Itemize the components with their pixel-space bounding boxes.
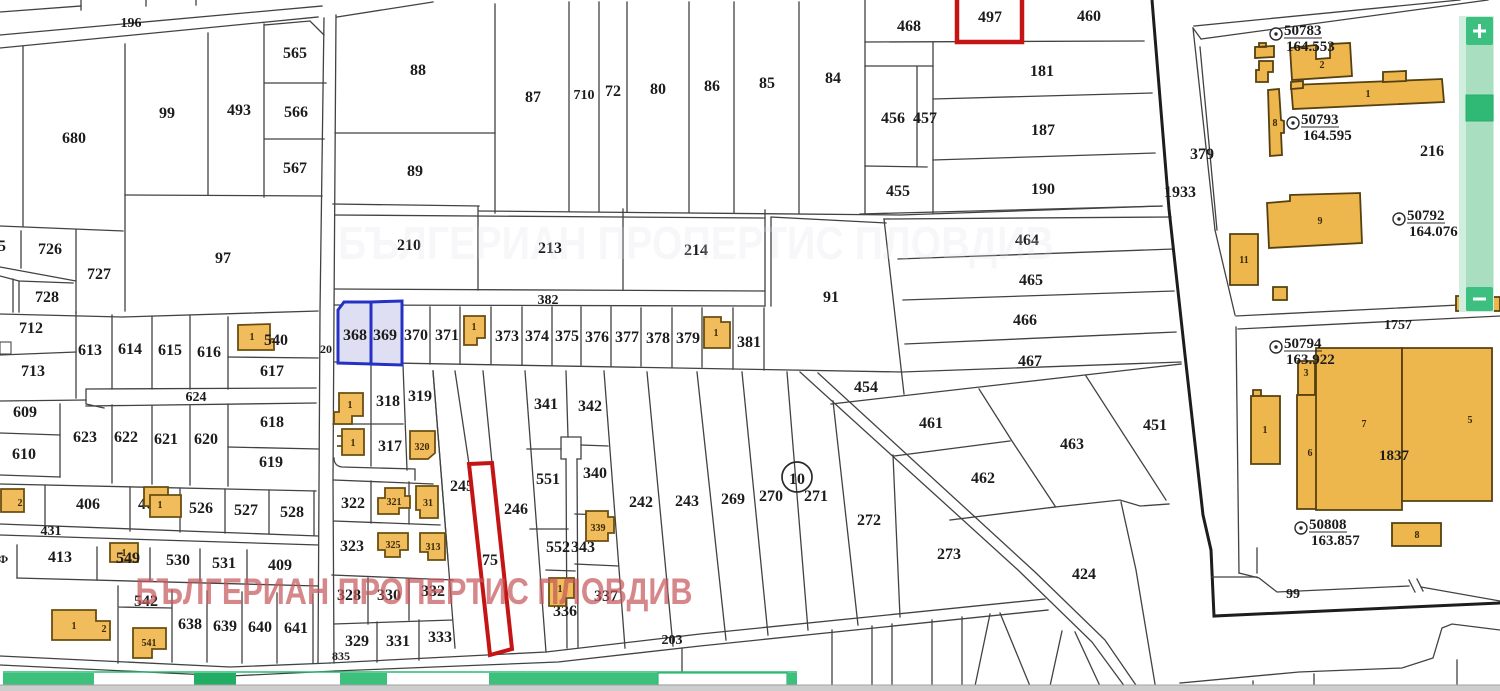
svg-text:339: 339 xyxy=(591,523,606,534)
svg-text:317: 317 xyxy=(378,438,402,455)
svg-text:616: 616 xyxy=(197,344,221,361)
svg-text:323: 323 xyxy=(340,538,364,555)
svg-text:3: 3 xyxy=(1304,368,1309,379)
svg-text:712: 712 xyxy=(19,320,43,337)
svg-text:164.076: 164.076 xyxy=(1409,224,1458,240)
svg-text:457: 457 xyxy=(913,110,937,127)
svg-text:728: 728 xyxy=(35,289,59,306)
svg-text:468: 468 xyxy=(897,18,921,35)
svg-text:273: 273 xyxy=(937,546,961,563)
svg-text:835: 835 xyxy=(332,649,350,663)
svg-text:371: 371 xyxy=(435,327,459,344)
svg-text:1757: 1757 xyxy=(1384,318,1412,333)
svg-text:2: 2 xyxy=(102,624,107,635)
svg-text:8: 8 xyxy=(1415,530,1420,541)
svg-text:609: 609 xyxy=(13,404,37,421)
svg-text:216: 216 xyxy=(1420,143,1444,160)
svg-text:187: 187 xyxy=(1031,122,1055,139)
svg-text:322: 322 xyxy=(341,495,365,512)
svg-text:1: 1 xyxy=(351,438,356,449)
svg-text:615: 615 xyxy=(158,342,182,359)
svg-text:331: 331 xyxy=(386,633,410,650)
svg-text:318: 318 xyxy=(376,393,400,410)
svg-text:610: 610 xyxy=(12,446,36,463)
svg-text:271: 271 xyxy=(804,488,828,505)
svg-text:641: 641 xyxy=(284,620,308,637)
svg-text:50783: 50783 xyxy=(1284,23,1322,39)
svg-text:614: 614 xyxy=(118,341,142,358)
svg-text:377: 377 xyxy=(615,329,639,346)
svg-text:680: 680 xyxy=(62,130,86,147)
svg-text:1: 1 xyxy=(72,621,77,632)
svg-text:540: 540 xyxy=(264,332,288,349)
svg-text:624: 624 xyxy=(186,390,207,405)
svg-text:466: 466 xyxy=(1013,312,1037,329)
svg-text:10: 10 xyxy=(789,471,805,488)
svg-text:2: 2 xyxy=(18,498,23,509)
svg-text:88: 88 xyxy=(410,62,426,79)
svg-text:80: 80 xyxy=(650,81,666,98)
svg-text:196: 196 xyxy=(121,16,142,31)
svg-text:406: 406 xyxy=(76,496,100,513)
svg-text:319: 319 xyxy=(408,388,432,405)
svg-text:329: 329 xyxy=(345,633,369,650)
svg-text:373: 373 xyxy=(495,328,519,345)
svg-text:381: 381 xyxy=(737,334,761,351)
svg-text:270: 270 xyxy=(759,488,783,505)
svg-text:164.553: 164.553 xyxy=(1286,39,1335,55)
svg-text:431: 431 xyxy=(41,524,62,539)
svg-text:242: 242 xyxy=(629,494,653,511)
svg-text:50792: 50792 xyxy=(1407,208,1445,224)
svg-text:99: 99 xyxy=(1286,587,1300,602)
svg-text:456: 456 xyxy=(881,110,905,127)
svg-text:621: 621 xyxy=(154,431,178,448)
svg-text:6: 6 xyxy=(1308,448,1313,459)
svg-text:528: 528 xyxy=(280,504,304,521)
svg-text:181: 181 xyxy=(1030,63,1054,80)
svg-text:75: 75 xyxy=(482,552,498,569)
svg-text:86: 86 xyxy=(704,78,720,95)
svg-text:623: 623 xyxy=(73,429,97,446)
svg-text:530: 530 xyxy=(166,552,190,569)
svg-text:465: 465 xyxy=(1019,272,1043,289)
svg-text:462: 462 xyxy=(971,470,995,487)
svg-text:726: 726 xyxy=(38,241,62,258)
svg-text:463: 463 xyxy=(1060,436,1084,453)
svg-text:333: 333 xyxy=(428,629,452,646)
svg-text:84: 84 xyxy=(825,70,841,87)
svg-text:1837: 1837 xyxy=(1379,448,1410,464)
svg-text:50808: 50808 xyxy=(1309,517,1347,533)
svg-text:5: 5 xyxy=(1468,415,1473,426)
svg-text:369: 369 xyxy=(373,327,397,344)
svg-text:321: 321 xyxy=(387,497,402,508)
svg-text:31: 31 xyxy=(423,498,433,509)
svg-text:50794: 50794 xyxy=(1284,336,1322,352)
svg-text:163.922: 163.922 xyxy=(1286,352,1335,368)
svg-text:620: 620 xyxy=(194,431,218,448)
svg-text:460: 460 xyxy=(1077,8,1101,25)
svg-text:99: 99 xyxy=(159,105,175,122)
svg-text:164.595: 164.595 xyxy=(1303,128,1352,144)
svg-text:1: 1 xyxy=(1263,425,1268,436)
svg-text:1: 1 xyxy=(348,400,353,411)
svg-text:713: 713 xyxy=(21,363,45,380)
svg-text:379: 379 xyxy=(1190,146,1214,163)
svg-text:243: 243 xyxy=(675,493,699,510)
svg-text:541: 541 xyxy=(142,638,157,649)
svg-text:8: 8 xyxy=(1273,118,1278,129)
svg-text:413: 413 xyxy=(48,549,72,566)
svg-text:622: 622 xyxy=(114,429,138,446)
svg-text:374: 374 xyxy=(525,328,549,345)
svg-text:163.857: 163.857 xyxy=(1311,533,1360,549)
svg-text:5: 5 xyxy=(0,238,6,255)
svg-text:549: 549 xyxy=(116,550,140,567)
svg-text:497: 497 xyxy=(978,9,1002,26)
svg-text:БЪЛГЕРИАН ПРОПЕРТИС ПЛОВДИВ: БЪЛГЕРИАН ПРОПЕРТИС ПЛОВДИВ xyxy=(136,571,693,612)
svg-text:382: 382 xyxy=(538,293,559,308)
svg-text:341: 341 xyxy=(534,396,558,413)
svg-text:246: 246 xyxy=(504,501,528,518)
svg-text:1: 1 xyxy=(158,500,163,511)
svg-text:Ф: Ф xyxy=(0,552,8,566)
svg-text:89: 89 xyxy=(407,163,423,180)
svg-text:85: 85 xyxy=(759,75,775,92)
svg-text:1: 1 xyxy=(1366,89,1371,100)
svg-text:454: 454 xyxy=(854,379,878,396)
svg-text:87: 87 xyxy=(525,89,541,106)
svg-text:269: 269 xyxy=(721,491,745,508)
svg-text:639: 639 xyxy=(213,618,237,635)
svg-text:461: 461 xyxy=(919,415,943,432)
svg-text:320: 320 xyxy=(415,442,430,453)
svg-text:91: 91 xyxy=(823,289,839,306)
svg-text:1: 1 xyxy=(714,328,719,339)
svg-text:325: 325 xyxy=(386,540,401,551)
svg-text:551: 551 xyxy=(536,471,560,488)
svg-text:618: 618 xyxy=(260,414,284,431)
svg-text:50793: 50793 xyxy=(1301,112,1339,128)
svg-text:2: 2 xyxy=(1320,60,1325,71)
svg-text:20: 20 xyxy=(320,342,332,356)
svg-text:613: 613 xyxy=(78,342,102,359)
svg-text:342: 342 xyxy=(578,398,602,415)
svg-text:531: 531 xyxy=(212,555,236,572)
svg-text:376: 376 xyxy=(585,329,609,346)
svg-text:565: 565 xyxy=(283,45,307,62)
svg-text:727: 727 xyxy=(87,266,111,283)
svg-text:340: 340 xyxy=(583,465,607,482)
svg-text:552: 552 xyxy=(546,539,570,556)
svg-text:493: 493 xyxy=(227,102,251,119)
svg-text:526: 526 xyxy=(189,500,213,517)
svg-text:467: 467 xyxy=(1018,353,1042,370)
svg-text:567: 567 xyxy=(283,160,307,177)
svg-text:527: 527 xyxy=(234,502,258,519)
svg-text:566: 566 xyxy=(284,104,308,121)
svg-text:11: 11 xyxy=(1239,255,1248,266)
svg-text:451: 451 xyxy=(1143,417,1167,434)
svg-text:1933: 1933 xyxy=(1164,184,1196,201)
svg-text:370: 370 xyxy=(404,327,428,344)
svg-text:190: 190 xyxy=(1031,181,1055,198)
svg-text:379: 379 xyxy=(676,330,700,347)
svg-text:617: 617 xyxy=(260,363,284,380)
svg-text:638: 638 xyxy=(178,616,202,633)
svg-text:375: 375 xyxy=(555,328,579,345)
svg-text:313: 313 xyxy=(426,542,441,553)
svg-text:272: 272 xyxy=(857,512,881,529)
svg-text:424: 424 xyxy=(1072,566,1096,583)
svg-text:1: 1 xyxy=(250,332,255,343)
svg-text:БЪЛГЕРИАН ПРОПЕРТИС ПЛОВДИВ: БЪЛГЕРИАН ПРОПЕРТИС ПЛОВДИВ xyxy=(338,217,1054,269)
svg-text:97: 97 xyxy=(215,250,231,267)
svg-text:368: 368 xyxy=(343,327,367,344)
svg-text:455: 455 xyxy=(886,183,910,200)
svg-text:619: 619 xyxy=(259,454,283,471)
svg-text:7: 7 xyxy=(1362,419,1367,430)
svg-text:72: 72 xyxy=(605,83,621,100)
svg-text:378: 378 xyxy=(646,330,670,347)
svg-text:203: 203 xyxy=(662,633,683,648)
svg-text:710: 710 xyxy=(574,88,595,103)
svg-text:9: 9 xyxy=(1318,216,1323,227)
svg-text:1: 1 xyxy=(472,322,477,333)
svg-text:640: 640 xyxy=(248,619,272,636)
